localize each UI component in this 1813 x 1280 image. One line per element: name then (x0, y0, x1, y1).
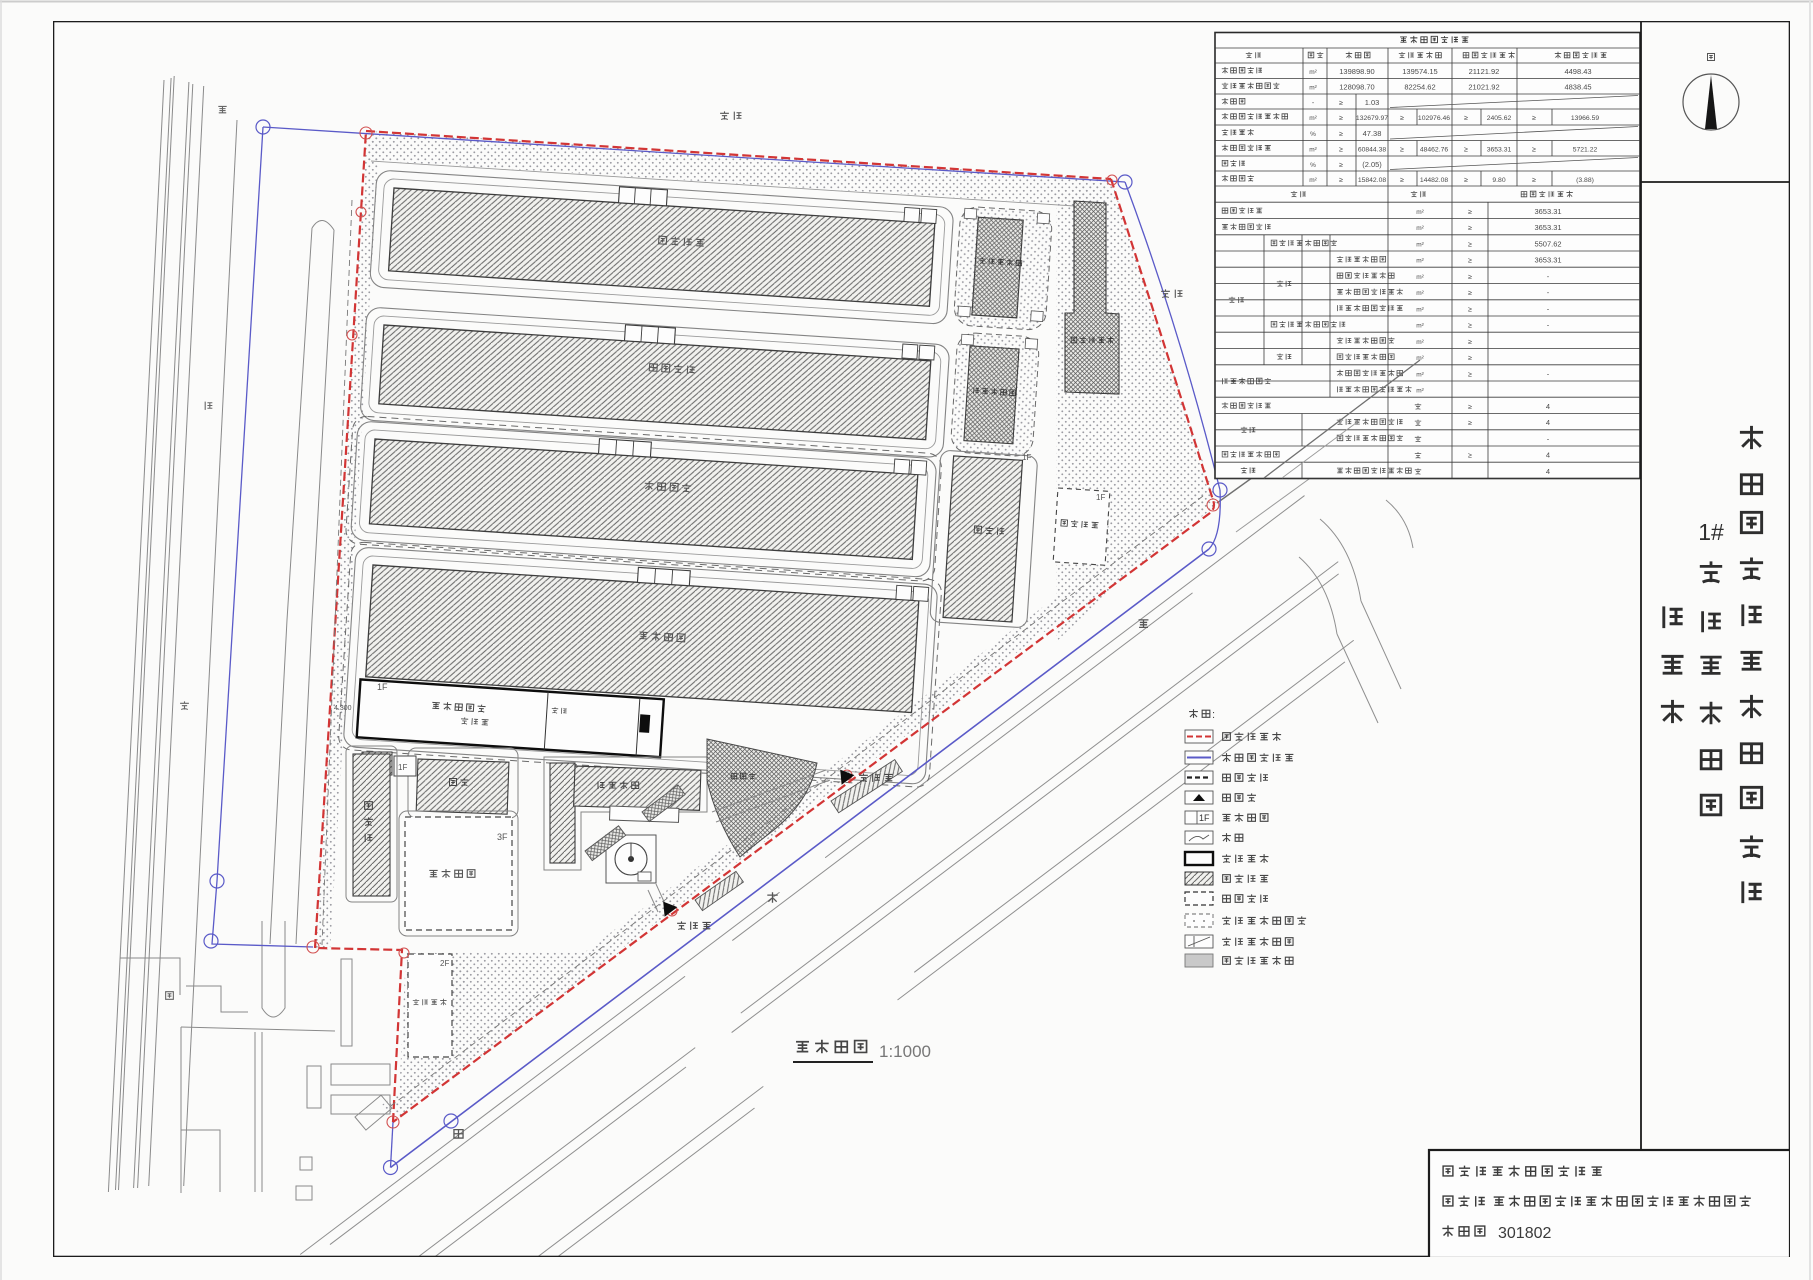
svg-text:5507.62: 5507.62 (1534, 239, 1561, 248)
svg-text:4: 4 (1546, 467, 1550, 476)
svg-text:≥: ≥ (1339, 115, 1343, 122)
svg-text:13966.59: 13966.59 (1571, 115, 1600, 122)
svg-text:1F: 1F (1199, 813, 1210, 823)
svg-text:≥: ≥ (1468, 453, 1472, 460)
svg-text:m²: m² (1416, 290, 1424, 297)
svg-text:15842.08: 15842.08 (1358, 177, 1387, 184)
svg-text:m²: m² (1309, 115, 1317, 122)
svg-text:m²: m² (1416, 225, 1424, 232)
svg-text:m²: m² (1416, 306, 1424, 313)
svg-text:m²: m² (1309, 85, 1317, 92)
svg-text:3653.31: 3653.31 (1534, 223, 1561, 232)
svg-text:m²: m² (1416, 323, 1424, 330)
svg-text:4498.43: 4498.43 (1564, 67, 1591, 76)
svg-text:≥: ≥ (1339, 162, 1343, 169)
svg-text:4838.45: 4838.45 (1564, 83, 1591, 92)
svg-text:≥: ≥ (1468, 274, 1472, 281)
svg-text:%: % (1310, 131, 1316, 138)
svg-text:≥: ≥ (1468, 420, 1472, 427)
svg-text:m²: m² (1416, 274, 1424, 281)
svg-text:≥: ≥ (1468, 404, 1472, 411)
svg-text:3653.31: 3653.31 (1534, 256, 1561, 265)
svg-text:m²: m² (1416, 258, 1424, 265)
svg-text:60844.38: 60844.38 (1358, 147, 1387, 154)
svg-text:m²: m² (1309, 147, 1317, 154)
svg-text:m²: m² (1416, 388, 1424, 395)
svg-text:≥: ≥ (1464, 177, 1468, 184)
svg-text:≥: ≥ (1468, 306, 1472, 313)
svg-text:m²: m² (1309, 177, 1317, 184)
svg-text:1.03: 1.03 (1365, 98, 1380, 107)
svg-text:m²: m² (1416, 339, 1424, 346)
svg-text:14482.08: 14482.08 (1420, 177, 1449, 184)
svg-text:≥: ≥ (1468, 290, 1472, 297)
svg-text:≥: ≥ (1464, 115, 1468, 122)
svg-text:≥: ≥ (1339, 177, 1343, 184)
svg-text:1F: 1F (1022, 453, 1031, 462)
svg-text:1:1000: 1:1000 (879, 1042, 931, 1061)
svg-text:3653.31: 3653.31 (1487, 147, 1512, 154)
svg-text:≥: ≥ (1339, 100, 1343, 107)
svg-text:301802: 301802 (1498, 1225, 1551, 1242)
svg-text:128098.70: 128098.70 (1339, 83, 1374, 92)
svg-text:m²: m² (1416, 371, 1424, 378)
svg-text:≥: ≥ (1468, 371, 1472, 378)
svg-text:48462.76: 48462.76 (1420, 147, 1449, 154)
svg-text:21121.92: 21121.92 (1469, 67, 1500, 76)
svg-text:1F: 1F (377, 682, 388, 692)
svg-text:3653.31: 3653.31 (1534, 207, 1561, 216)
svg-text:≥: ≥ (1468, 339, 1472, 346)
svg-text:%: % (1310, 162, 1316, 169)
svg-text:9.80: 9.80 (1492, 177, 1505, 184)
svg-text:≥: ≥ (1532, 177, 1536, 184)
svg-text:≥: ≥ (1468, 355, 1472, 362)
svg-text:102976.46: 102976.46 (1418, 115, 1450, 122)
svg-text:(2.05): (2.05) (1362, 160, 1382, 169)
svg-text:≥: ≥ (1400, 177, 1404, 184)
svg-text:4: 4 (1546, 451, 1550, 460)
svg-text:≥: ≥ (1468, 241, 1472, 248)
svg-text:≥: ≥ (1400, 147, 1404, 154)
svg-text:1F: 1F (1096, 493, 1105, 502)
svg-text:2F: 2F (440, 959, 449, 968)
svg-text:≥: ≥ (1468, 323, 1472, 330)
svg-text:47.38: 47.38 (1363, 129, 1382, 138)
svg-text:≥: ≥ (1339, 131, 1343, 138)
svg-text:≥: ≥ (1532, 147, 1536, 154)
svg-text:4.300: 4.300 (334, 705, 352, 712)
svg-text:1#: 1# (1698, 519, 1724, 545)
svg-text:≥: ≥ (1339, 147, 1343, 154)
svg-text:≥: ≥ (1400, 115, 1404, 122)
svg-text:≥: ≥ (1468, 225, 1472, 232)
svg-text:5721.22: 5721.22 (1573, 147, 1598, 154)
svg-text:82254.62: 82254.62 (1404, 83, 1435, 92)
svg-text:4: 4 (1546, 402, 1550, 411)
svg-text:139574.15: 139574.15 (1402, 67, 1437, 76)
svg-text:132679.97: 132679.97 (1356, 115, 1388, 122)
svg-text:139898.90: 139898.90 (1339, 67, 1374, 76)
svg-text:3F: 3F (497, 832, 508, 842)
svg-text:≥: ≥ (1464, 147, 1468, 154)
svg-text:≥: ≥ (1532, 115, 1536, 122)
svg-text:m²: m² (1416, 241, 1424, 248)
svg-text:≥: ≥ (1468, 258, 1472, 265)
svg-text::: : (1212, 709, 1215, 721)
svg-text:≥: ≥ (1468, 209, 1472, 216)
svg-text:m²: m² (1309, 69, 1317, 76)
svg-text:m²: m² (1416, 209, 1424, 216)
svg-text:4: 4 (1546, 418, 1550, 427)
svg-text:1F: 1F (398, 763, 407, 772)
svg-text:(3.88): (3.88) (1576, 177, 1594, 184)
svg-text:2405.62: 2405.62 (1487, 115, 1512, 122)
svg-text:21021.92: 21021.92 (1468, 83, 1499, 92)
